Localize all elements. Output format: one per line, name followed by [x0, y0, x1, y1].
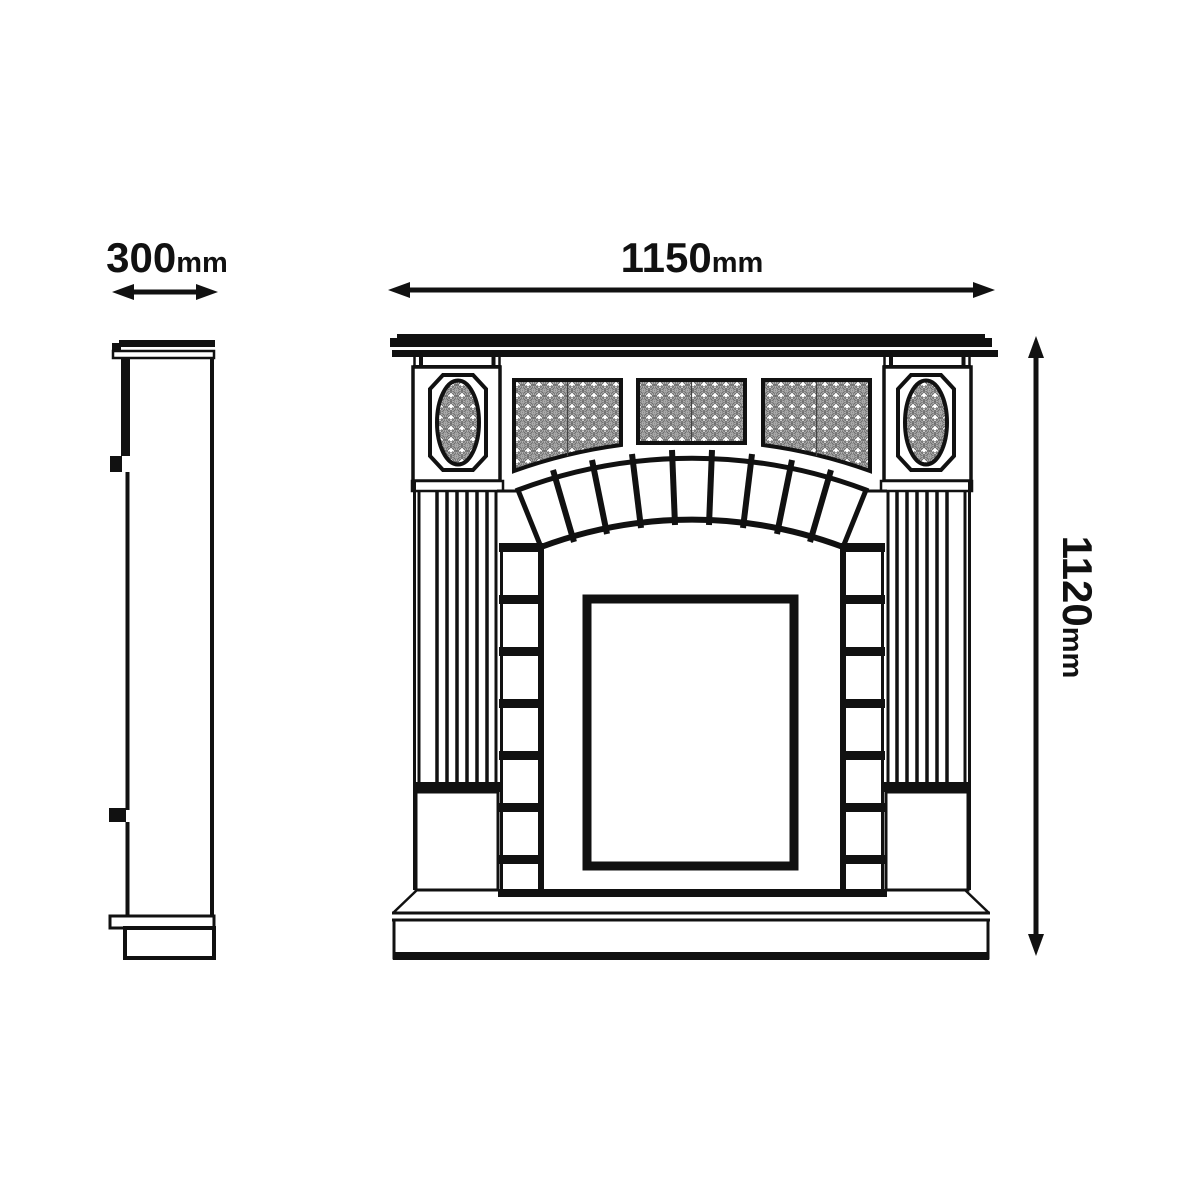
dimension-unit: mm	[176, 247, 228, 279]
front-view	[390, 334, 998, 960]
brick-column-left	[499, 543, 543, 895]
height-label: 1120mm	[1054, 536, 1101, 679]
arrowhead-right-icon	[973, 282, 995, 298]
side-bracket-lower	[109, 808, 126, 822]
brick-separators	[841, 543, 885, 864]
dimension-value: 300	[106, 234, 176, 281]
arrowhead-right-icon	[196, 284, 218, 300]
mantel-shelf	[390, 334, 998, 357]
side-body	[109, 358, 212, 916]
column-plinth-left	[416, 792, 498, 890]
side-upper-front-edge	[121, 358, 130, 456]
corner-block-right	[881, 357, 972, 491]
dimension-depth: 300mm	[106, 234, 228, 300]
base	[392, 889, 990, 960]
oval-medallion-left	[437, 381, 479, 465]
firebox-opening	[587, 599, 794, 866]
column-flutes-right	[888, 491, 965, 782]
dimension-value: 1150	[621, 234, 712, 281]
dimension-unit: mm	[712, 247, 764, 279]
width-label: 1150mm	[621, 234, 764, 281]
depth-label: 300mm	[106, 234, 228, 281]
arrowhead-up-icon	[1028, 336, 1044, 358]
dimension-unit: mm	[1056, 627, 1088, 679]
column-flutes-left	[419, 491, 496, 782]
corner-block-left	[412, 357, 503, 491]
column-right	[882, 481, 970, 890]
arrowhead-left-icon	[388, 282, 410, 298]
arrowhead-down-icon	[1028, 934, 1044, 956]
column-left	[414, 481, 502, 890]
side-view	[109, 340, 215, 958]
width-arrow	[388, 282, 995, 298]
technical-drawing: 300mm 1150mm 1120mm	[0, 0, 1200, 1200]
dimension-width: 1150mm	[388, 234, 995, 298]
drawing-canvas: 300mm 1150mm 1120mm	[0, 0, 1200, 1200]
dimension-height: 1120mm	[1028, 336, 1101, 956]
brick-column-right	[841, 543, 885, 895]
depth-arrow	[112, 284, 218, 300]
arrowhead-left-icon	[112, 284, 134, 300]
base-plinth-bottom-edge	[393, 952, 989, 960]
dimension-value: 1120	[1054, 536, 1101, 627]
side-bracket-upper	[110, 456, 122, 472]
side-base	[110, 916, 214, 958]
body-bottom-band	[498, 889, 887, 897]
side-shelf	[112, 340, 215, 358]
oval-medallion-right	[905, 381, 947, 465]
arch	[497, 450, 887, 547]
height-arrow	[1028, 336, 1044, 956]
column-plinth-right	[886, 792, 968, 890]
brick-separators	[499, 543, 543, 864]
